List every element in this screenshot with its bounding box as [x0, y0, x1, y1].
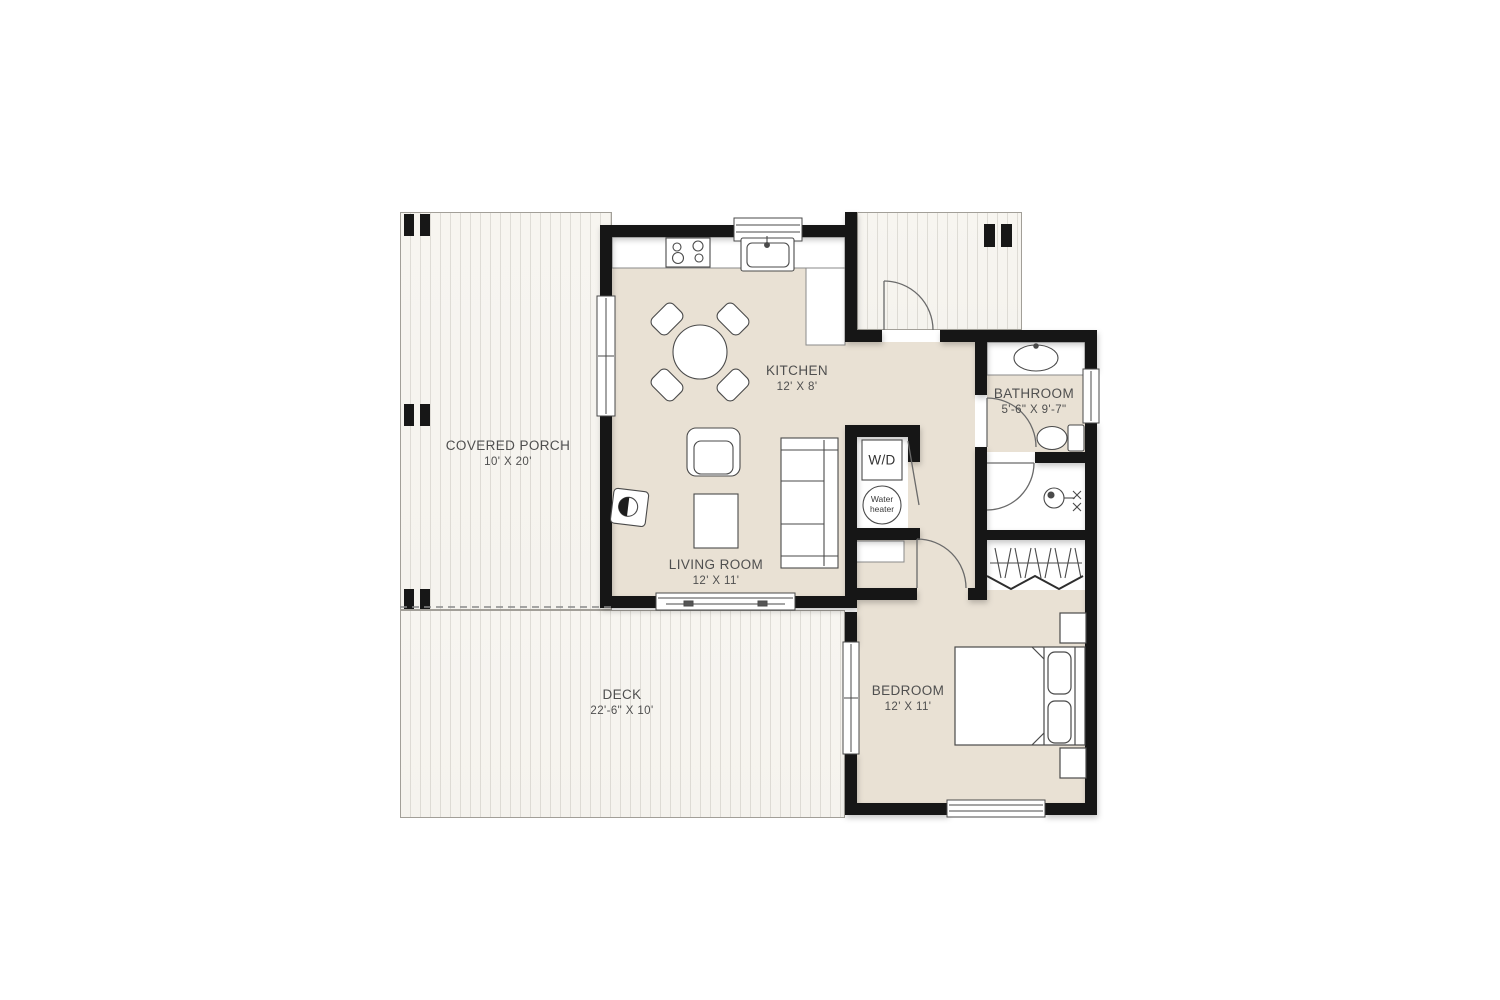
- porch-post: [404, 214, 414, 236]
- wall-segment: [1035, 452, 1085, 463]
- room-dims: 10' X 20': [446, 455, 570, 470]
- wall-segment: [845, 330, 882, 342]
- kitchen-counter: [612, 237, 845, 268]
- wall-segment: [600, 225, 857, 237]
- toilet: [1037, 425, 1084, 451]
- porch-post: [420, 589, 430, 609]
- porch-post: [420, 404, 430, 426]
- bathroom-label: BATHROOM 5'-6" X 9'-7": [994, 385, 1074, 417]
- floor-plan: COVERED PORCH 10' X 20' KITCHEN 12' X 8'…: [0, 0, 1500, 1000]
- sofa: [781, 438, 838, 568]
- window: [843, 642, 859, 754]
- door-swing: [884, 281, 933, 330]
- shower-room-floor: [987, 452, 1085, 530]
- nightstand: [1060, 748, 1086, 778]
- coffee-table: [694, 494, 738, 548]
- room-dims: 5'-6" X 9'-7": [994, 403, 1074, 418]
- kitchen-sink: [741, 236, 794, 271]
- wall-segment: [908, 425, 920, 462]
- hall-shelf: [852, 541, 904, 562]
- covered-porch-label: COVERED PORCH 10' X 20': [446, 437, 570, 469]
- room-dims: 22'-6" X 10': [590, 704, 653, 719]
- pillow: [1048, 701, 1071, 743]
- armchair: [687, 428, 740, 476]
- room-dims: 12' X 11': [669, 574, 763, 589]
- water-heater-label: Water heater: [862, 495, 902, 515]
- wall-segment: [845, 212, 857, 342]
- wall-segment: [845, 528, 920, 540]
- wall-segment: [845, 425, 857, 608]
- porch-post: [404, 589, 414, 609]
- kitchen-label: KITCHEN 12' X 8': [766, 362, 828, 394]
- window: [597, 296, 615, 416]
- sliding-glass-door: [656, 593, 795, 610]
- wall-segment: [1085, 330, 1097, 370]
- wall-segment: [845, 612, 857, 643]
- wall-segment: [987, 530, 1085, 540]
- stove-cooktop: [666, 238, 710, 267]
- room-name: DECK: [590, 686, 653, 704]
- dining-table-top: [673, 325, 727, 379]
- pillow: [1048, 652, 1071, 694]
- wall-segment: [1085, 422, 1097, 815]
- deck-label: DECK 22'-6" X 10': [590, 686, 653, 718]
- porch-post: [404, 404, 414, 426]
- plan-graphics: [0, 0, 1500, 1000]
- wood-stove: [610, 488, 649, 527]
- room-name: BEDROOM: [872, 682, 945, 700]
- wall-segment: [975, 342, 987, 395]
- room-name: BATHROOM: [994, 385, 1074, 403]
- room-dims: 12' X 11': [872, 700, 945, 715]
- room-name: KITCHEN: [766, 362, 828, 380]
- window: [947, 800, 1045, 817]
- living-room-label: LIVING ROOM 12' X 11': [669, 556, 763, 588]
- room-name: LIVING ROOM: [669, 556, 763, 574]
- wall-segment: [1045, 803, 1097, 815]
- porch-post: [1001, 224, 1012, 247]
- washer-dryer-label: W/D: [868, 453, 895, 468]
- wall-segment: [845, 803, 948, 815]
- porch-post: [984, 224, 995, 247]
- room-name: COVERED PORCH: [446, 437, 570, 455]
- wall-segment: [968, 588, 987, 600]
- porch-post: [420, 214, 430, 236]
- wall-segment: [975, 447, 987, 600]
- wall-segment: [940, 330, 1097, 342]
- bedroom-label: BEDROOM 12' X 11': [872, 682, 945, 714]
- kitchen-counter-return: [806, 268, 845, 345]
- bed: [955, 647, 1085, 745]
- window: [1083, 369, 1099, 423]
- nightstand: [1060, 613, 1086, 643]
- room-dims: 12' X 8': [766, 380, 828, 395]
